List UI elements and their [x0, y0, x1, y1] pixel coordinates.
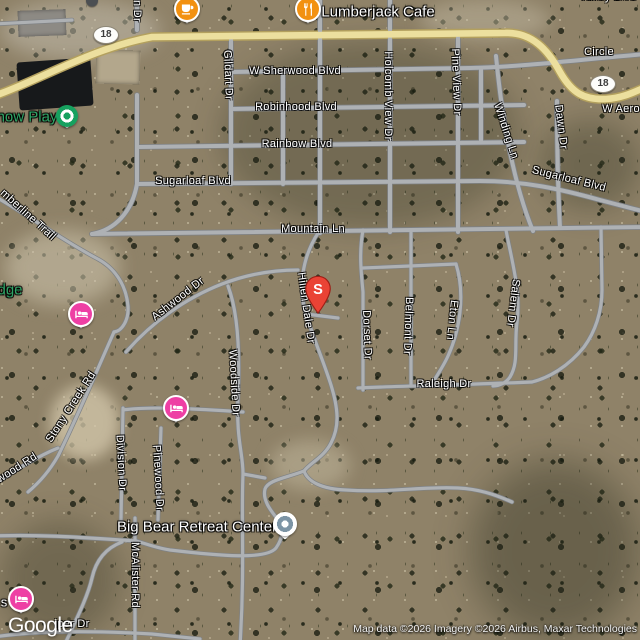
lodging-marker[interactable] — [8, 586, 34, 612]
poi-label-s[interactable]: s — [1, 595, 8, 610]
poi-label-dge[interactable]: dge — [0, 282, 23, 299]
restaurant-marker[interactable] — [295, 0, 321, 22]
poi-label-big-bear-retreat-center[interactable]: Big Bear Retreat Center — [117, 519, 277, 536]
poi-label-now-play[interactable]: now Play — [0, 109, 57, 126]
coffee-cup-icon — [180, 2, 195, 17]
bed-icon — [14, 592, 29, 607]
road-network — [0, 0, 640, 640]
bed-icon — [74, 307, 89, 322]
place-dot-icon — [273, 512, 297, 536]
lodging-marker[interactable] — [163, 395, 189, 421]
park-icon — [56, 105, 78, 127]
poi-label-lumberjack-cafe[interactable]: Lumberjack Cafe — [321, 4, 434, 21]
google-logo[interactable]: Google — [8, 614, 73, 638]
cafe-marker[interactable] — [174, 0, 200, 22]
place-marker[interactable] — [273, 512, 297, 536]
map-canvas[interactable]: W Sherwood BlvdRobinhood BlvdRainbow Blv… — [0, 0, 640, 640]
park-marker[interactable] — [56, 105, 78, 127]
restaurant-icon — [301, 2, 316, 17]
search-pin-marker[interactable]: S — [304, 275, 332, 320]
lodging-marker[interactable] — [68, 301, 94, 327]
bed-icon — [169, 401, 184, 416]
map-pin-icon: S — [304, 275, 332, 315]
map-attribution: Map data ©2026 Imagery ©2026 Airbus, Max… — [353, 623, 637, 635]
svg-text:S: S — [313, 282, 323, 298]
